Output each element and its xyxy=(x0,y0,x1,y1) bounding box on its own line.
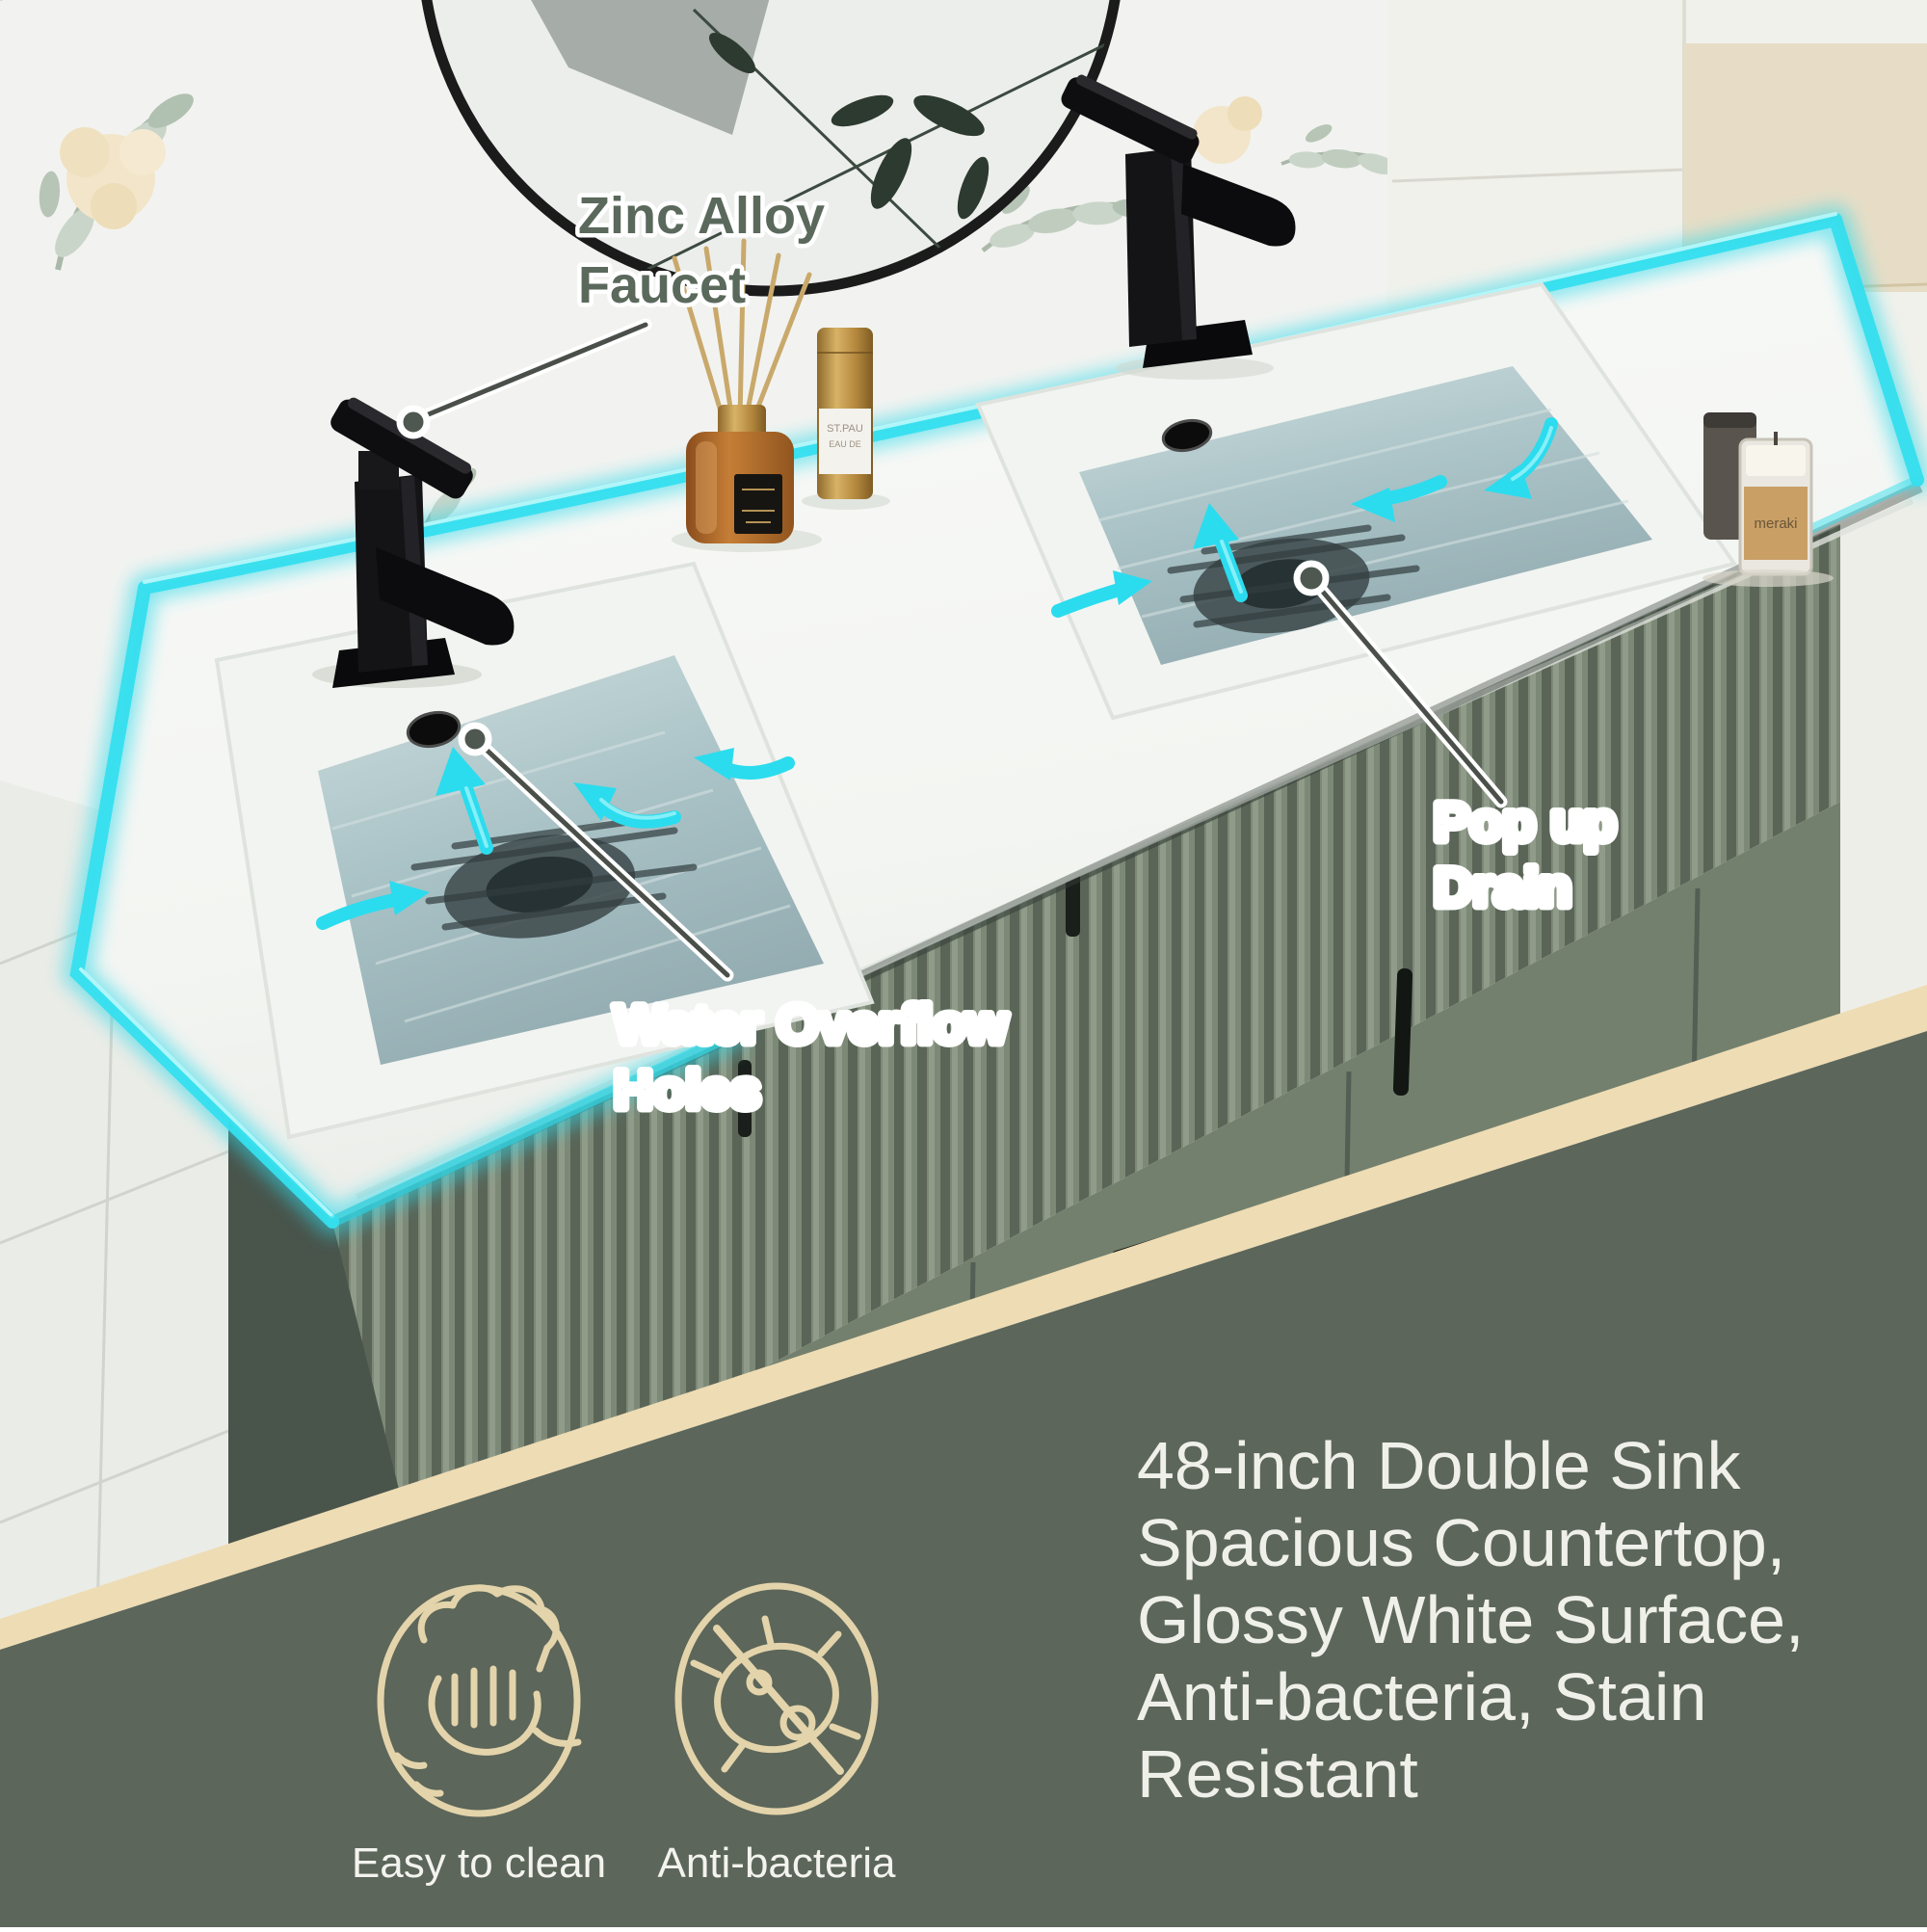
callout-drain-line1: Pop up xyxy=(1434,791,1617,852)
headline-line-5: Resistant xyxy=(1137,1736,1418,1812)
perfume-label-line1: ST.PAU xyxy=(827,423,863,435)
headline-line-2: Spacious Countertop, xyxy=(1137,1505,1785,1580)
diffuser-label xyxy=(734,474,782,534)
perfume-label-line2: EAU DE xyxy=(829,439,861,449)
callout-drain-line2: Drain xyxy=(1434,857,1571,917)
headline-line-4: Anti-bacteria, Stain xyxy=(1137,1659,1706,1734)
feature-label-anti-bacteria: Anti-bacteria xyxy=(657,1839,896,1887)
candle-jar: meraki xyxy=(1740,432,1811,574)
feature-label-easy-to-clean: Easy to clean xyxy=(352,1839,606,1887)
callout-faucet-line2: Faucet xyxy=(578,256,746,314)
headline-line-1: 48-inch Double Sink xyxy=(1137,1428,1741,1503)
headline-line-3: Glossy White Surface, xyxy=(1137,1582,1804,1657)
vanity-scene: ST.PAU EAU DE meraki xyxy=(0,0,1927,1927)
candle-label-text: meraki xyxy=(1754,516,1797,532)
callout-overflow-line1: Water Overflow xyxy=(614,993,1008,1054)
callout-overflow-line2: Holes xyxy=(614,1059,761,1120)
product-image: ST.PAU EAU DE meraki xyxy=(0,0,1927,1927)
callout-faucet-line1: Zinc Alloy xyxy=(578,187,825,245)
